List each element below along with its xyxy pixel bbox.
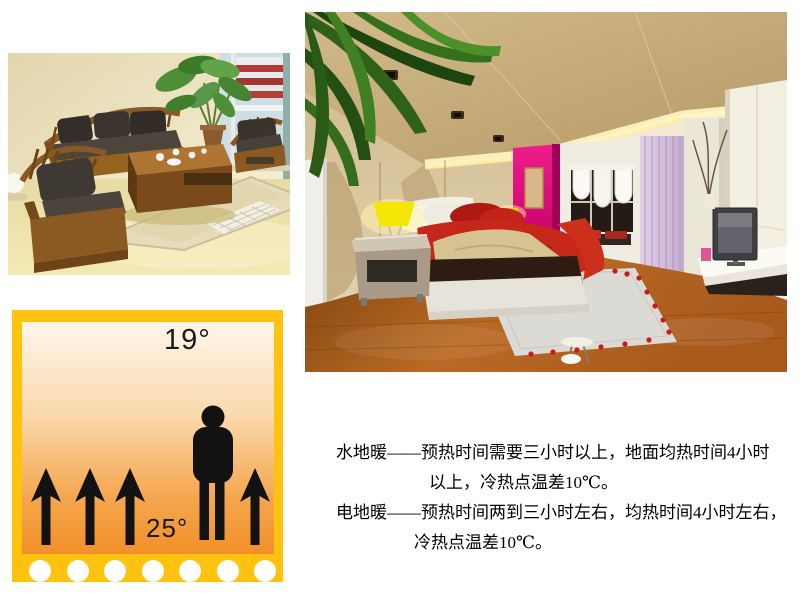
heating-pipe-dot [179,560,201,582]
floor-heating-diagram: 19° 25° [12,310,283,582]
heating-pipe-dot [67,560,89,582]
heat-arrow-icon [240,468,270,545]
bedroom-illustration [305,12,787,372]
bedroom-photo [305,12,787,372]
heating-description-line: 以上，冷热点温差10℃。 [429,468,800,498]
heating-gradient-panel: 19° 25° [22,322,274,554]
heat-arrow-icon [31,468,61,545]
heat-arrow-icon [75,468,105,545]
curtain [640,136,684,274]
heat-arrow-icon [115,468,145,545]
heating-description-line: 电地暖——预热时间两到三小时左右，均热时间4小时左右， [336,498,800,528]
heating-pipe-dot [254,560,276,582]
heating-pipe-dots [29,560,276,582]
heating-pipe-dot [217,560,239,582]
heating-description-line: 冷热点温差10℃。 [414,528,800,558]
heating-pipe-dot [104,560,126,582]
heating-description: 水地暖——预热时间需要三小时以上，地面均热时间4小时 以上，冷热点温差10℃。 … [336,438,800,558]
tv [713,208,757,266]
floor-heating-infographic: 19° 25° 水地暖——预热时间需要三小时以上，地面均热时间4小时 以上，冷热… [0,0,800,599]
floor-temperature-label: 25° [146,513,188,544]
person-icon [193,406,233,541]
air-temperature-label: 19° [164,324,211,357]
living-room-illustration [8,53,290,275]
living-room-photo [8,53,290,275]
coffee-table [120,144,236,225]
heating-description-line: 水地暖——预热时间需要三小时以上，地面均热时间4小时 [336,438,800,468]
heating-pipe-dot [29,560,51,582]
heating-pipe-dot [142,560,164,582]
nightstand [351,199,431,306]
